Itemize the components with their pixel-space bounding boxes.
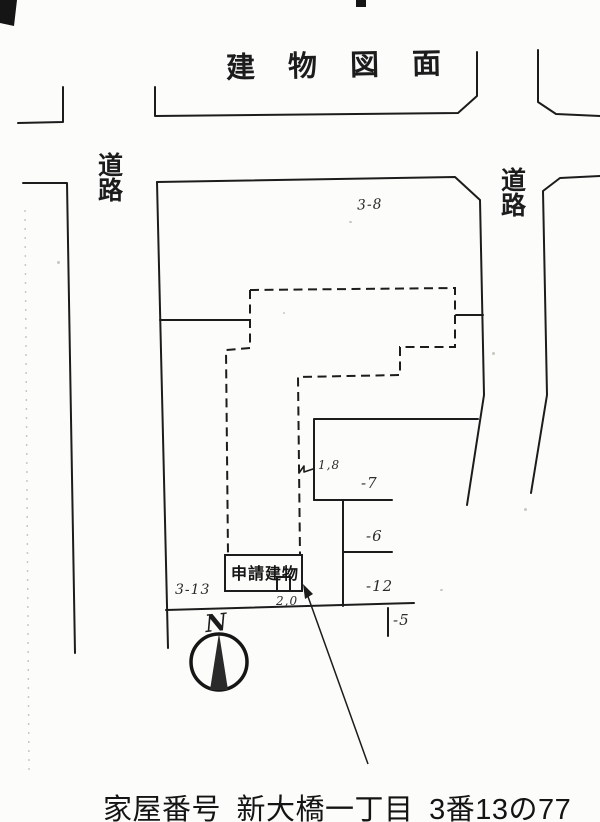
compass-needle xyxy=(210,633,228,690)
road-right-outer-top xyxy=(538,50,600,116)
parcel-label-minus6: -6 xyxy=(366,527,383,545)
drawing-title: 建物図面 xyxy=(226,39,475,86)
leader-arrowhead xyxy=(303,584,313,599)
scanned-building-drawing-page: 建物図面 道路 道路 3-8 1,8 -7 -6 -12 -5 3-13 2,0… xyxy=(0,0,600,822)
road-label-left: 道路 xyxy=(96,152,122,202)
building-dashed-east xyxy=(250,288,455,555)
scan-fold-line xyxy=(25,210,29,770)
scan-speck xyxy=(283,312,285,314)
lot-boundary-top-right xyxy=(157,177,484,505)
scan-speck xyxy=(349,221,352,223)
parcel-label-minus12: -12 xyxy=(366,577,393,595)
parcel-label-minus7: -7 xyxy=(361,474,378,492)
parcel-label-minus5: -5 xyxy=(393,611,410,629)
road-right-outer-edge xyxy=(531,176,600,493)
scan-speck xyxy=(524,508,527,511)
dimension-label-2-0: 2,0 xyxy=(276,594,298,608)
parcel-label-3-13: 3-13 xyxy=(175,582,210,598)
block-corner-topleft xyxy=(18,87,63,123)
building-dashed-west xyxy=(226,290,250,555)
scan-artifact-top-tick xyxy=(356,0,366,7)
compass-n-label: N xyxy=(204,607,229,638)
scan-speck xyxy=(492,352,495,355)
leader-arrow xyxy=(303,584,368,764)
lot-boundary-left xyxy=(157,182,168,648)
dim-step-mark xyxy=(299,466,313,473)
compass xyxy=(191,633,247,690)
scan-speck xyxy=(440,589,443,591)
drawing-linework xyxy=(0,0,600,822)
parcel-label-3-8: 3-8 xyxy=(357,196,383,213)
road-label-right: 道路 xyxy=(499,167,525,217)
scan-speck xyxy=(57,261,60,264)
caption-house-number: 家屋番号 新大橋一丁目 3番13の77 xyxy=(103,786,571,822)
building-dashed-outline xyxy=(226,288,455,555)
road-left-west-edge xyxy=(23,183,75,653)
scan-artifact-corner-blob xyxy=(0,0,17,26)
dimension-label-1-8: 1,8 xyxy=(318,458,340,472)
applied-building-label: 申請建物 xyxy=(231,560,299,584)
